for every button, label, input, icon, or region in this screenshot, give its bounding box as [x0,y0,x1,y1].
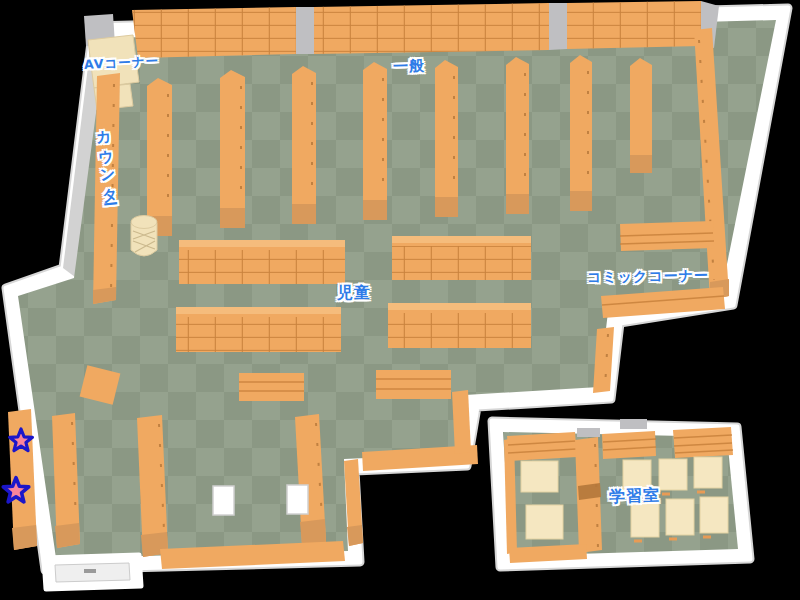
bookshelf-end [347,525,363,546]
study-desk [521,461,558,492]
bookshelf-end [220,208,245,228]
library-floor-map: AVコーナー 一般 カウンター 児童 コミックコーナー 学習室 [0,0,800,600]
carrel-shelf [673,427,733,458]
spinner-top [131,216,157,229]
doorway [620,419,647,429]
kids-shelf-top [179,240,345,247]
area-label-comic-corner: コミックコーナー [587,267,709,287]
carrel-shelf [507,432,577,461]
bookshelf-grid [567,1,701,49]
door-handle [84,569,96,573]
bookshelf-grid [132,7,296,58]
study-desk [659,459,687,490]
floor-map-canvas [0,0,800,600]
area-label-study-room: 学習室 [609,485,661,508]
kids-shelf-top [388,303,531,310]
bookshelf-end [12,525,37,550]
pillar [549,3,567,50]
pillar [296,7,314,54]
kids-shelf [239,373,304,401]
doorway [577,428,600,437]
kids-shelf [376,370,451,399]
study-desk [694,457,722,488]
bookshelf-end [363,200,387,220]
kids-shelf-grid [179,250,345,284]
bookshelf-end [570,191,592,211]
bookshelf-end [506,194,529,214]
kids-shelf-grid [388,313,531,348]
kids-shelf-top [176,307,341,314]
kids-shelf-grid [392,246,531,280]
bookshelf-end [435,197,458,217]
area-label-general: 一般 [393,56,426,76]
bookshelf-end [300,519,326,545]
wall-bookshelf [452,390,471,454]
bookshelf-end [630,155,652,173]
study-desk [700,497,728,533]
spinner-rack [131,216,157,257]
area-label-children: 児童 [337,283,371,304]
study-desk [526,505,563,539]
bookshelf-end [292,204,316,224]
bookshelf-end [55,523,80,548]
divider-notch [578,483,601,500]
entrance [44,555,141,589]
step-stool [287,485,308,514]
step-stool [213,486,234,515]
kids-shelf-top [392,236,531,243]
study-desk [666,499,694,535]
kids-shelf-grid [176,317,341,352]
bookshelf-grid [314,3,549,54]
carrel-shelf [602,431,656,459]
